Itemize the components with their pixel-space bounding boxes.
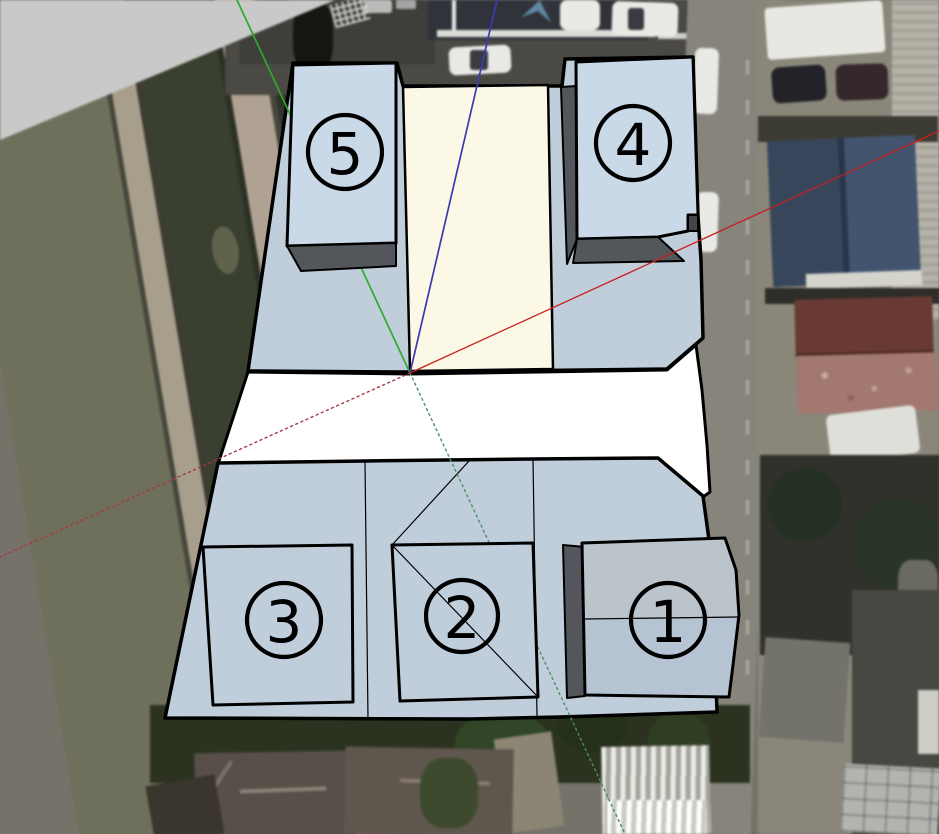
building-3-label: 3 — [266, 588, 303, 656]
building-5[interactable]: 5 — [287, 63, 396, 271]
building-2[interactable]: 2 — [392, 543, 538, 701]
building-4-label: 4 — [615, 111, 652, 179]
building-4[interactable]: 4 — [561, 57, 698, 264]
site-model-overlay[interactable]: 5 4 3 2 — [0, 0, 939, 834]
building-1-label: 1 — [650, 588, 687, 656]
building-5-label: 5 — [327, 120, 364, 188]
building-5-base-side[interactable] — [287, 243, 396, 271]
building-1[interactable]: 1 — [563, 538, 739, 698]
courtyard-plane[interactable] — [403, 85, 553, 371]
viewport-3d[interactable]: 5 4 3 2 — [0, 0, 939, 834]
building-3[interactable]: 3 — [203, 545, 353, 705]
building-2-label: 2 — [444, 584, 481, 652]
building-4-notch[interactable] — [688, 215, 698, 231]
